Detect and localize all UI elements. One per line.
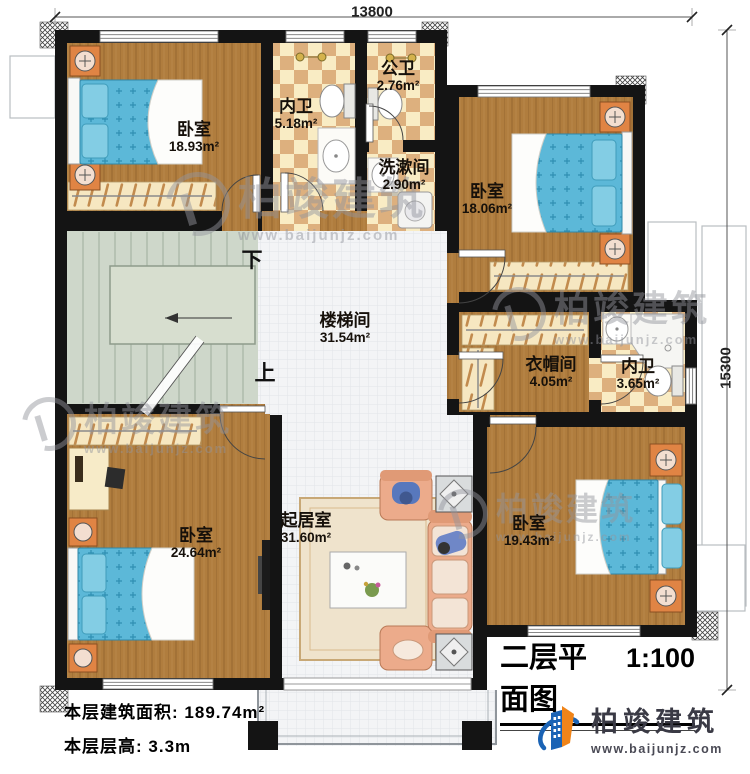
watermark: 柏竣建筑 www.baijunjz.com	[492, 280, 710, 347]
toilet-icon	[672, 366, 683, 396]
brand-logo-icon	[534, 700, 582, 756]
room-label-bath-inner-top: 内卫 5.18m²	[275, 97, 318, 131]
coffee-table	[330, 552, 406, 608]
plan-scale: 1:100	[626, 643, 695, 674]
room-label-bath-inner-right: 内卫 3.65m²	[617, 357, 660, 391]
watermark-logo-icon	[153, 159, 242, 248]
room-label-cloakroom: 衣帽间 4.05m²	[526, 355, 577, 389]
floor-height-value: 3.3m	[148, 737, 191, 756]
watermark-name: 柏竣建筑	[84, 392, 232, 441]
column	[462, 721, 492, 750]
room-label-bedroom-bottom-right: 卧室 19.43m²	[504, 514, 554, 548]
watermark-logo-icon	[428, 479, 498, 549]
room-label-bedroom-top-right: 卧室 18.06m²	[462, 182, 512, 216]
watermark-name: 柏竣建筑	[554, 280, 710, 332]
toilet-icon	[344, 84, 355, 118]
room-label-bedroom-bottom-left: 卧室 24.64m²	[171, 526, 221, 560]
floor-plan-canvas: 柏竣建筑 www.baijunjz.com 柏竣建筑 www.baijunjz.…	[0, 0, 750, 774]
stairs-down-label: 下	[242, 244, 263, 274]
watermark: 柏竣建筑 www.baijunjz.com	[22, 392, 232, 456]
stairs-up-label: 上	[255, 357, 276, 387]
watermark-logo-icon	[11, 386, 86, 461]
room-label-living-room: 起居室 31.60m²	[281, 511, 332, 545]
brand-website: www.baijunjz.com	[591, 742, 723, 756]
floor-area-label: 本层建筑面积:	[64, 703, 179, 722]
room-label-bath-public: 公卫 2.76m²	[377, 59, 420, 93]
dimension-width: 13800	[351, 4, 393, 21]
watermark-site: www.baijunjz.com	[554, 332, 710, 347]
floor-area-value: 189.74m²	[184, 703, 265, 722]
room-label-bedroom-top-left: 卧室 18.93m²	[169, 120, 219, 154]
dimension-height: 15300	[718, 347, 735, 389]
tv-icon	[262, 540, 270, 610]
floor-height-label: 本层层高:	[64, 737, 143, 756]
watermark-site: www.baijunjz.com	[84, 441, 232, 456]
watermark-site: www.baijunjz.com	[238, 227, 426, 244]
floor-stats: 本层建筑面积: 189.74m² 本层层高: 3.3m	[64, 698, 265, 766]
room-label-washroom: 洗漱间 2.90m²	[379, 158, 430, 192]
room-label-stairwell: 楼梯间 31.54m²	[320, 311, 371, 345]
brand-name: 柏竣建筑	[591, 700, 723, 739]
watermark-logo-icon	[481, 276, 556, 351]
terrace	[248, 678, 496, 750]
brand-logo: 柏竣建筑 www.baijunjz.com	[534, 700, 723, 756]
